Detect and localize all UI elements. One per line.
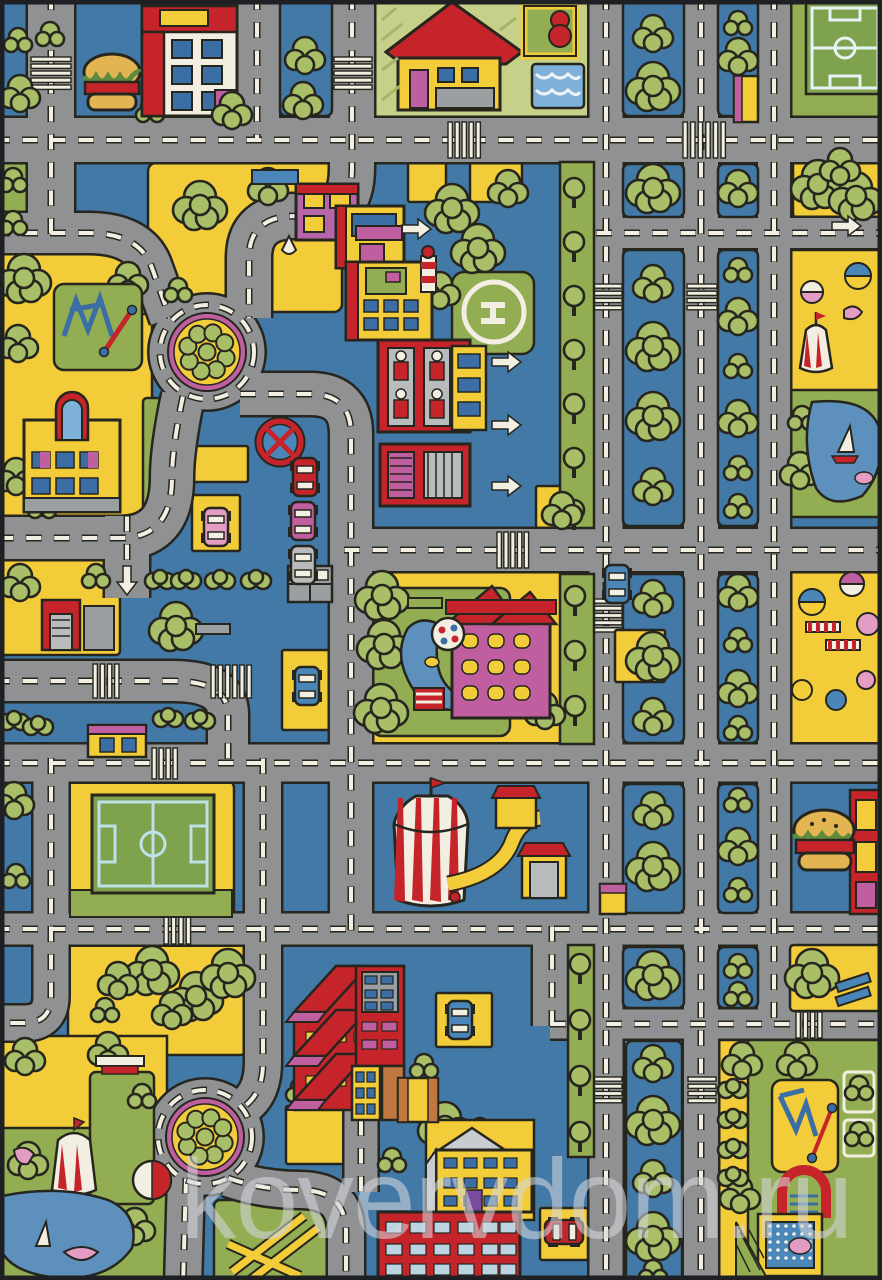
svg-text:kovervdom.ru: kovervdom.ru xyxy=(180,1136,853,1262)
